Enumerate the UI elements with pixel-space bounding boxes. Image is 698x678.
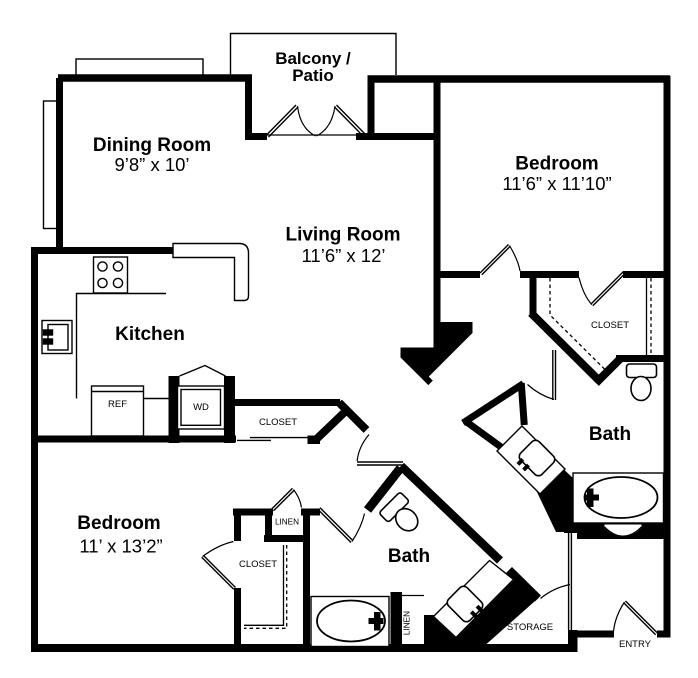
svg-text:CLOSET: CLOSET xyxy=(239,559,277,570)
svg-text:Bedroom: Bedroom xyxy=(515,154,598,175)
svg-text:11’ x 13’2”: 11’ x 13’2” xyxy=(79,536,162,557)
svg-text:Patio: Patio xyxy=(292,66,334,85)
svg-text:Bath: Bath xyxy=(388,546,430,567)
svg-text:CLOSET: CLOSET xyxy=(259,417,297,428)
svg-text:ENTRY: ENTRY xyxy=(619,639,652,650)
svg-text:STORAGE: STORAGE xyxy=(507,622,553,633)
svg-text:LINEN: LINEN xyxy=(403,611,412,635)
svg-text:REF: REF xyxy=(108,399,127,410)
svg-text:WD: WD xyxy=(193,402,209,413)
svg-text:Dining Room: Dining Room xyxy=(93,135,211,156)
svg-text:Bedroom: Bedroom xyxy=(77,513,160,534)
svg-text:9’8” x 10’: 9’8” x 10’ xyxy=(114,154,189,175)
svg-text:Kitchen: Kitchen xyxy=(115,324,185,345)
svg-text:Bath: Bath xyxy=(589,424,631,445)
svg-text:CLOSET: CLOSET xyxy=(591,320,629,331)
svg-text:11’6” x 12’: 11’6” x 12’ xyxy=(302,245,386,266)
svg-text:Living Room: Living Room xyxy=(285,225,400,246)
svg-text:11’6” x 11’10”: 11’6” x 11’10” xyxy=(502,173,611,194)
svg-text:LINEN: LINEN xyxy=(275,518,299,527)
